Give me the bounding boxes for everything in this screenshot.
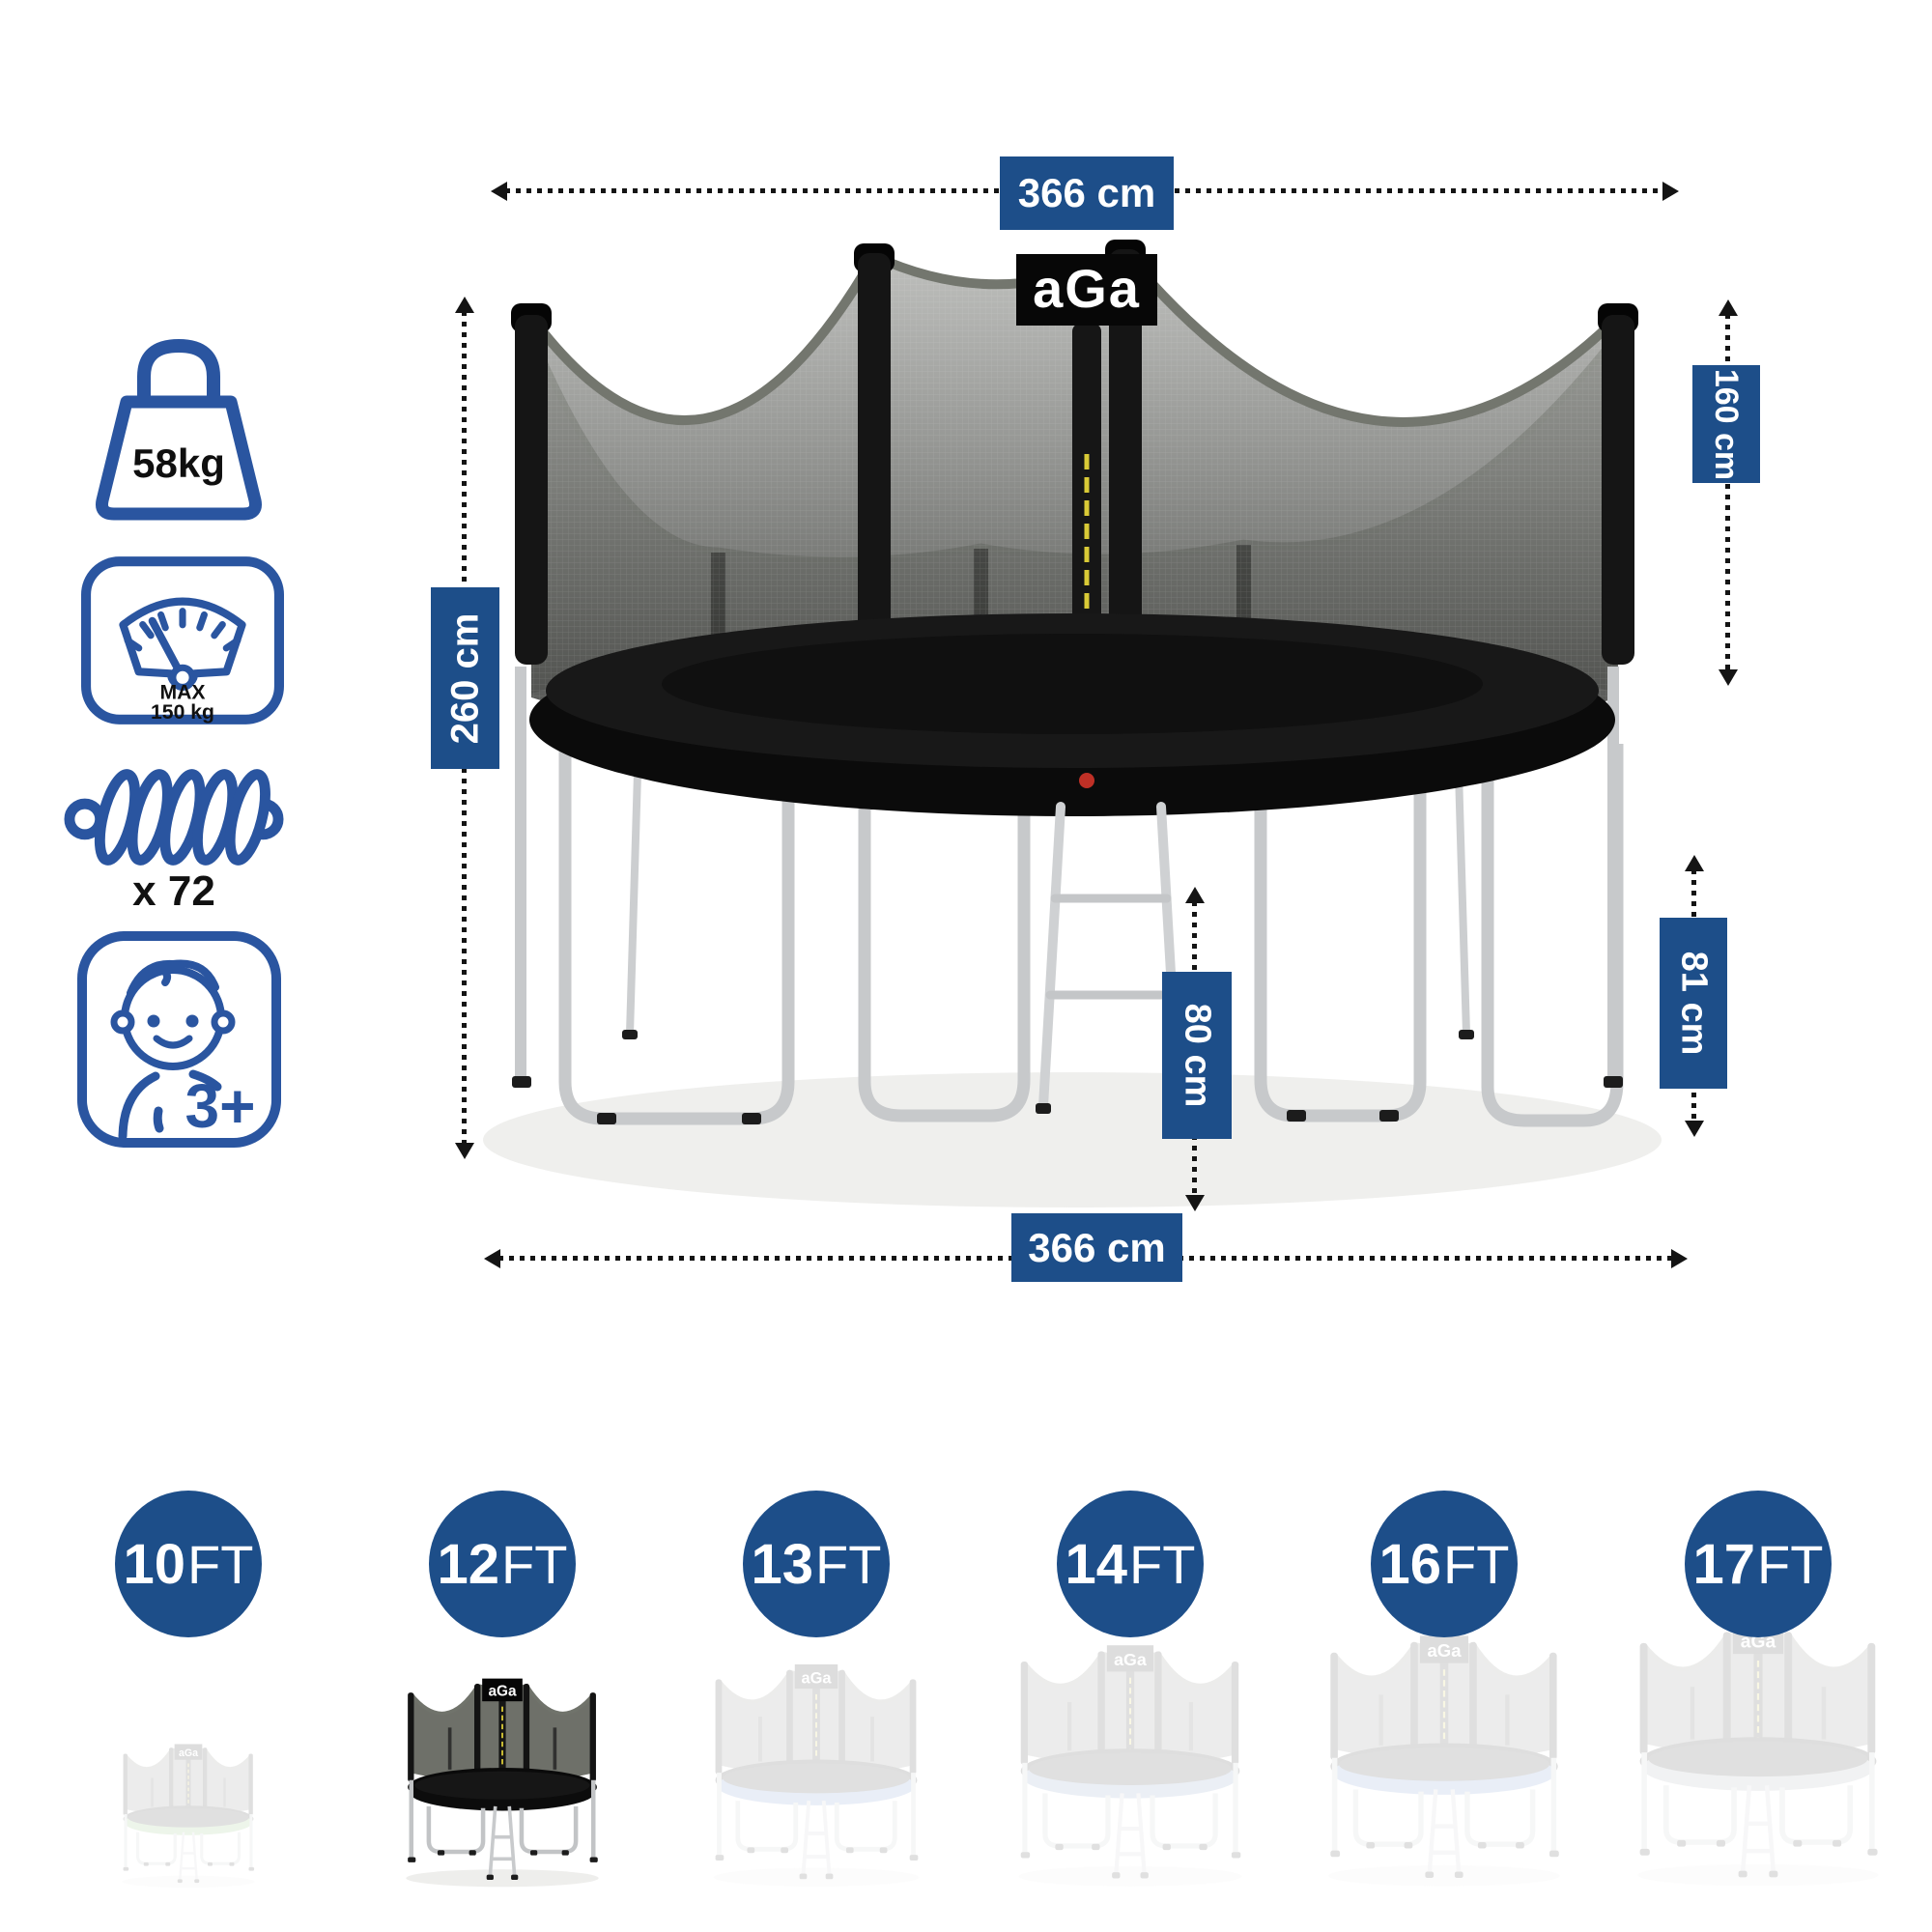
size-option-16ft-thumbnail[interactable] xyxy=(1318,1632,1571,1889)
size-option-16ft-unit: FT xyxy=(1443,1533,1509,1596)
dim-label-total-height-text: 260 cm xyxy=(443,612,487,744)
size-option-16ft-value: 16 xyxy=(1379,1532,1442,1597)
child-icon: 3+ xyxy=(75,929,283,1150)
zipper-pull xyxy=(1079,773,1094,788)
dim-label-net-height: 160 cm xyxy=(1692,365,1760,483)
dim-label-bottom-width: 366 cm xyxy=(1011,1213,1182,1282)
dim-label-net-height-text: 160 cm xyxy=(1708,368,1746,479)
age-spec: 3+ xyxy=(75,929,283,1150)
max-load-spec: MAX 150 kg xyxy=(80,556,285,724)
size-option-10ft-thumbnail[interactable] xyxy=(116,1742,261,1889)
jump-mat xyxy=(662,634,1483,734)
weight-value: 58kg xyxy=(132,440,225,486)
size-option-16ft-button[interactable]: 16FT xyxy=(1371,1491,1518,1637)
scale-icon: MAX 150 kg xyxy=(80,556,285,724)
size-option-17ft-button[interactable]: 17FT xyxy=(1685,1491,1832,1637)
dim-label-ladder-height: 80 cm xyxy=(1162,972,1232,1139)
age-value: 3+ xyxy=(185,1071,256,1141)
dim-label-top-width: 366 cm xyxy=(1000,156,1174,230)
size-option-10ft-unit: FT xyxy=(187,1533,253,1596)
dim-label-frame-height-text: 81 cm xyxy=(1673,952,1715,1056)
size-option-17ft-value: 17 xyxy=(1693,1532,1756,1597)
springs-count: x 72 xyxy=(77,867,270,916)
size-option-13ft-value: 13 xyxy=(752,1532,814,1597)
size-option-17ft-unit: FT xyxy=(1757,1533,1823,1596)
max-load-line2: 150 kg xyxy=(151,701,214,724)
weight-icon: 58kg xyxy=(82,307,275,522)
product-infographic: 58kg MAX 150 kg xyxy=(0,0,1932,1932)
size-option-14ft-button[interactable]: 14FT xyxy=(1057,1491,1204,1637)
trampoline-photo: aGa xyxy=(435,232,1690,1256)
size-option-12ft-unit: FT xyxy=(501,1533,567,1596)
size-option-14ft-unit: FT xyxy=(1129,1533,1195,1596)
size-option-13ft-unit: FT xyxy=(815,1533,881,1596)
weight-spec: 58kg xyxy=(82,307,275,522)
spring-icon xyxy=(64,763,284,871)
size-option-12ft-button[interactable]: 12FT xyxy=(429,1491,576,1637)
dim-label-ladder-height-text: 80 cm xyxy=(1177,1004,1218,1108)
size-option-12ft-value: 12 xyxy=(438,1532,500,1597)
springs-spec xyxy=(64,763,284,871)
size-option-17ft-thumbnail[interactable] xyxy=(1627,1621,1889,1889)
dim-label-frame-height: 81 cm xyxy=(1660,918,1727,1089)
size-option-10ft-button[interactable]: 10FT xyxy=(115,1491,262,1637)
size-option-12ft-thumbnail[interactable] xyxy=(397,1675,608,1889)
dim-label-total-height: 260 cm xyxy=(431,587,499,769)
size-option-10ft-value: 10 xyxy=(124,1532,186,1597)
size-option-14ft-value: 14 xyxy=(1065,1532,1128,1597)
size-option-13ft-thumbnail[interactable] xyxy=(704,1661,928,1889)
brand-logo: aGa xyxy=(1033,258,1141,319)
size-option-13ft-button[interactable]: 13FT xyxy=(743,1491,890,1637)
size-option-14ft-thumbnail[interactable] xyxy=(1009,1641,1252,1889)
